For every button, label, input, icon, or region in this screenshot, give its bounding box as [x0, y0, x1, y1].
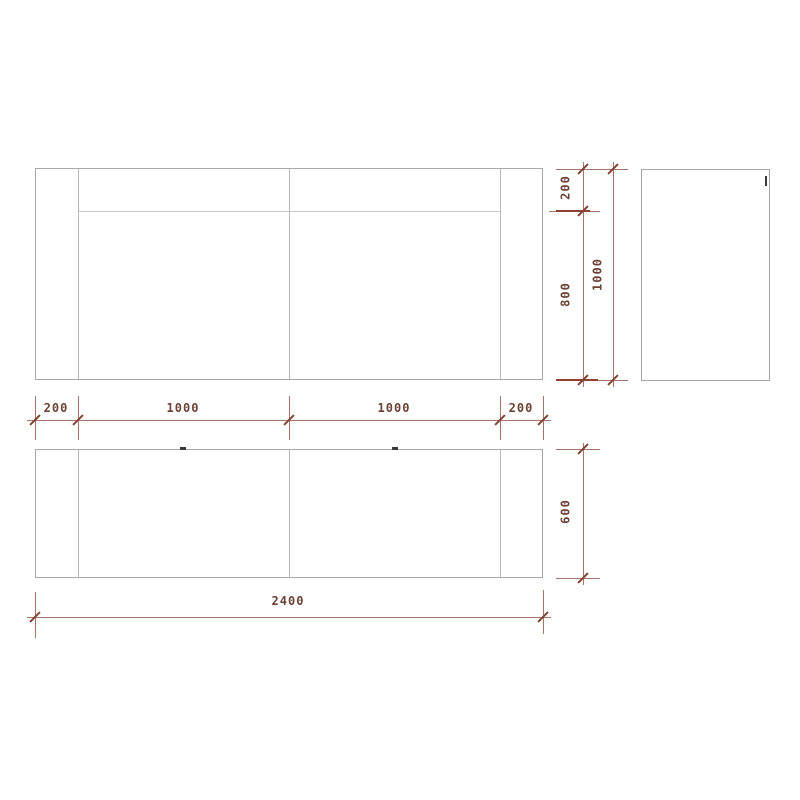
plan-view-left-door-handle-icon	[180, 447, 186, 450]
dim-label-total-width: 2400	[266, 595, 310, 608]
front-view-right-panel-divider	[500, 169, 501, 379]
front-view-center-divider	[289, 169, 290, 379]
dim-label-right-panel-width: 200	[501, 402, 541, 415]
dim-label-left-panel-width: 200	[36, 402, 76, 415]
side-view-handle-mark-icon	[765, 176, 767, 186]
dim-line-height-total	[613, 162, 614, 387]
plan-view-right-panel-divider	[500, 450, 501, 577]
dim-label-right-door-width: 1000	[372, 402, 416, 415]
drawing-canvas: 200 1000 1000 200 200 800 1000 600 2400	[0, 0, 800, 800]
plan-view-left-panel-divider	[78, 450, 79, 577]
dim-extension-line	[556, 578, 600, 579]
dim-label-total-height: 1000	[592, 253, 605, 297]
front-view-top-rail-line	[79, 211, 500, 212]
dim-line-height-segments	[583, 162, 584, 387]
plan-view-right-door-handle-icon	[392, 447, 398, 450]
plan-view-center-divider	[289, 450, 290, 577]
dim-label-depth: 600	[560, 492, 573, 532]
side-view-outline	[641, 169, 770, 381]
dim-line-depth	[583, 443, 584, 585]
dim-extension-emphasis	[556, 379, 598, 381]
front-view-left-panel-divider	[78, 169, 79, 379]
dim-label-door-height: 800	[560, 275, 573, 315]
dim-label-left-door-width: 1000	[161, 402, 205, 415]
dim-line-total-width	[27, 617, 551, 618]
dim-label-top-rail-height: 200	[560, 168, 573, 208]
dim-extension-line	[543, 590, 544, 634]
dim-extension-line	[556, 449, 600, 450]
